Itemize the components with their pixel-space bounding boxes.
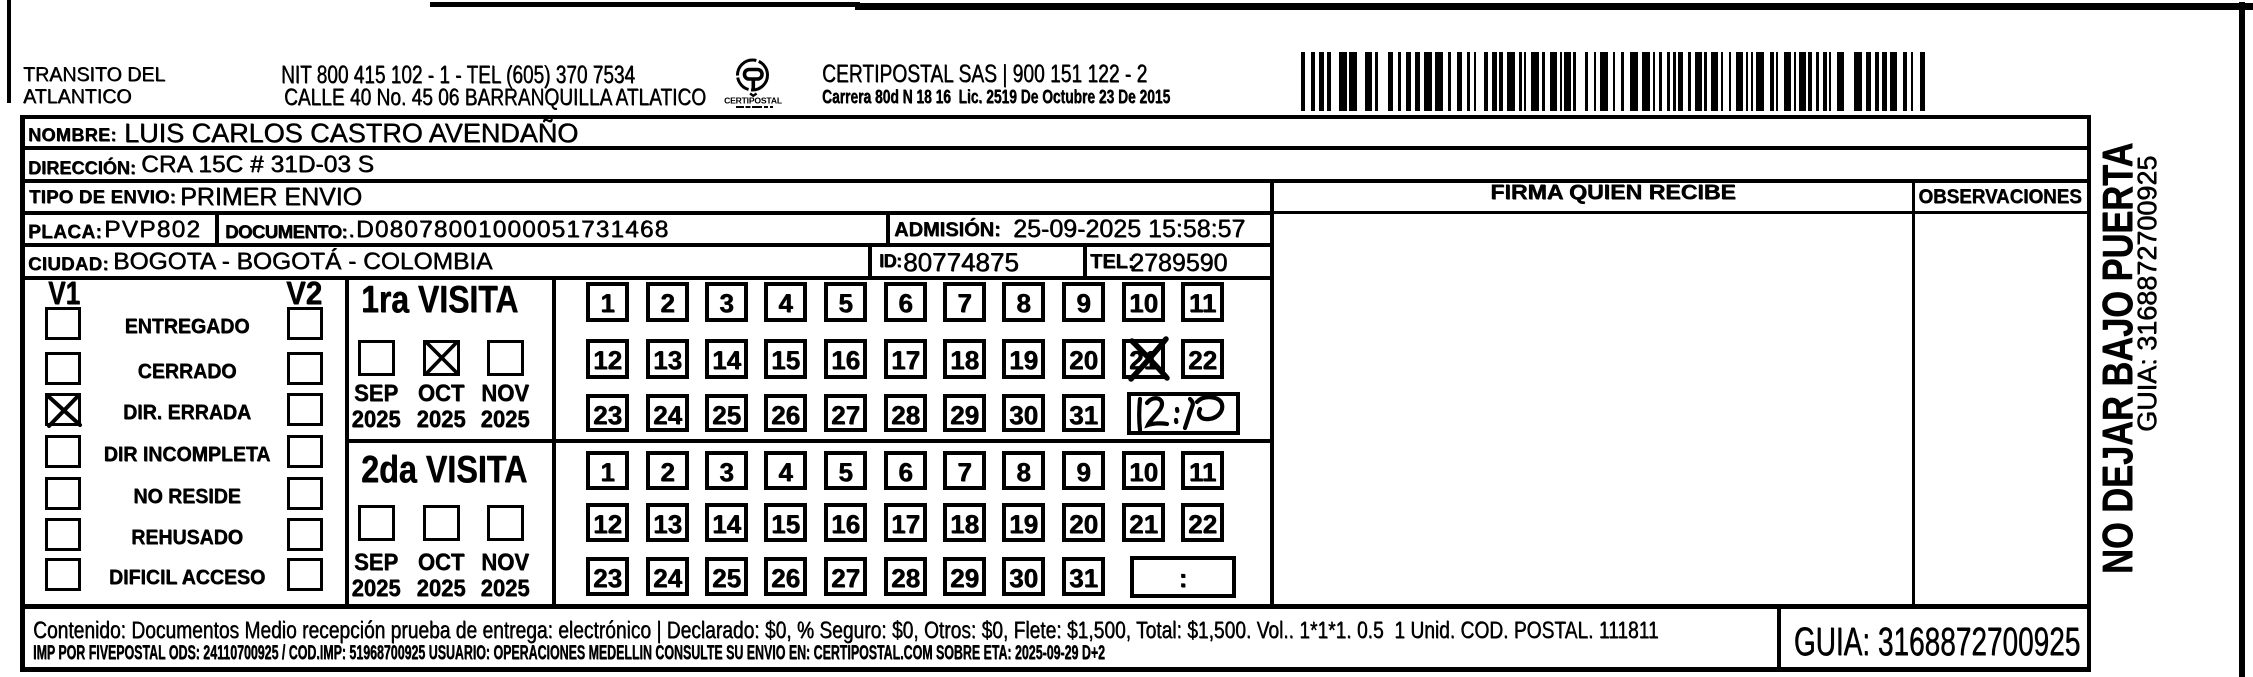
svg-text:CERTIPOSTAL: CERTIPOSTAL	[724, 96, 782, 106]
